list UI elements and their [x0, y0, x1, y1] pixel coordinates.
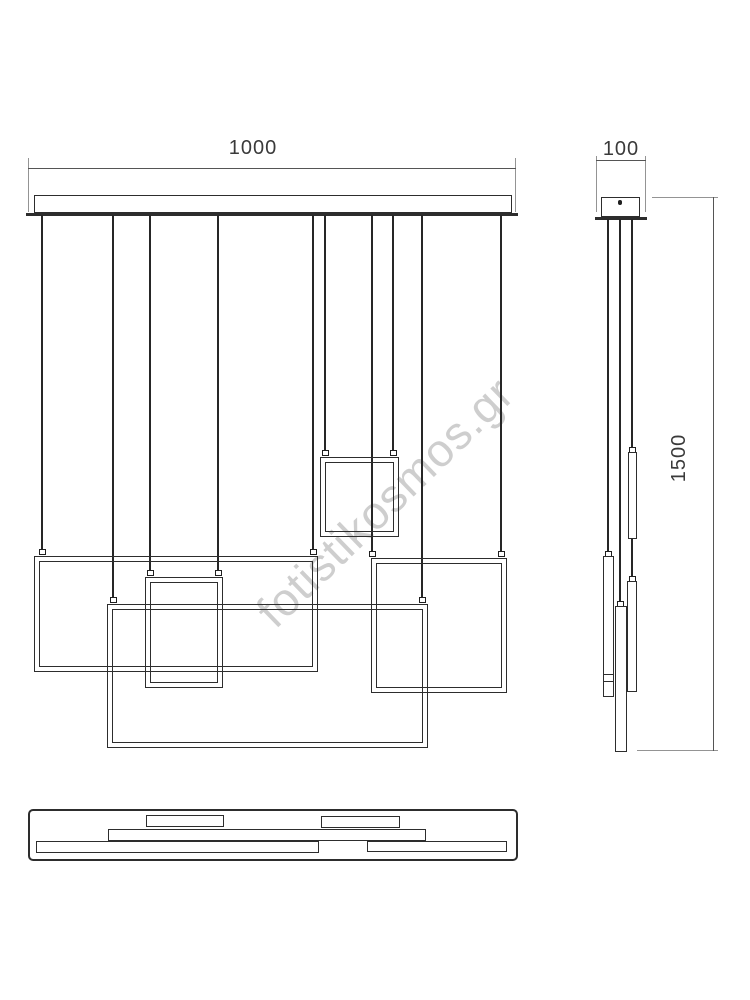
bottom-bar-wide-rect	[108, 829, 426, 841]
wire-connector-8	[390, 450, 397, 456]
height-reference-line-top	[652, 197, 718, 198]
wire-connector-7	[369, 551, 376, 557]
frame-top-square	[320, 457, 399, 537]
bottom-bar-left-rect	[36, 841, 319, 853]
suspension-wire-6	[324, 215, 327, 451]
height-reference-line-bottom	[637, 750, 718, 751]
suspension-wire-4	[217, 215, 220, 571]
suspension-wire-10	[500, 215, 503, 552]
side-profile-top-square	[628, 452, 638, 539]
side-width-dimension-line	[596, 160, 646, 161]
side-profile-divider-2	[604, 681, 613, 682]
side-wire-left	[607, 219, 610, 552]
suspension-wire-3	[149, 215, 152, 571]
wire-connector-1	[39, 549, 46, 555]
side-profile-divider-1	[604, 674, 613, 675]
technical-drawing-canvas: fotistikosmos.gr 1000	[0, 0, 750, 1000]
side-width-dimension-label: 100	[581, 139, 661, 159]
side-wire-right-lower	[631, 539, 633, 577]
side-wire-right	[631, 219, 634, 448]
side-extension-line-right	[645, 156, 646, 212]
bottom-bar-top-square	[321, 816, 400, 828]
suspension-wire-2	[112, 215, 115, 598]
height-dimension-label: 1500	[669, 408, 689, 508]
side-profile-small-rect	[627, 581, 637, 692]
canopy-bar-front	[34, 195, 512, 213]
drawing-layer: 1000	[0, 0, 750, 1000]
suspension-wire-5	[312, 215, 315, 550]
bottom-bar-small-rect	[146, 815, 224, 827]
frame-top-square-inner	[325, 462, 394, 532]
suspension-wire-9	[421, 215, 424, 598]
canopy-flange-front	[26, 213, 518, 216]
front-width-dimension-label: 1000	[193, 138, 313, 158]
side-extension-line-left	[596, 156, 597, 212]
side-profile-wide-rect	[615, 606, 627, 752]
front-extension-line-left	[28, 158, 29, 212]
front-width-dimension-line	[28, 168, 516, 169]
wire-connector-6	[322, 450, 329, 456]
suspension-wire-8	[392, 215, 395, 451]
front-extension-line-right	[515, 158, 516, 212]
suspension-wire-1	[41, 215, 44, 550]
side-profile-left-right-rects	[603, 556, 614, 697]
frame-wide-rect-inner	[112, 609, 423, 743]
height-dimension-line	[713, 197, 714, 751]
wire-connector-10	[498, 551, 505, 557]
side-wire-middle	[619, 219, 622, 602]
frame-wide-rect	[107, 604, 428, 748]
canopy-screw-dot	[618, 200, 623, 205]
wire-connector-5	[310, 549, 317, 555]
bottom-bar-right-rect	[367, 841, 507, 852]
